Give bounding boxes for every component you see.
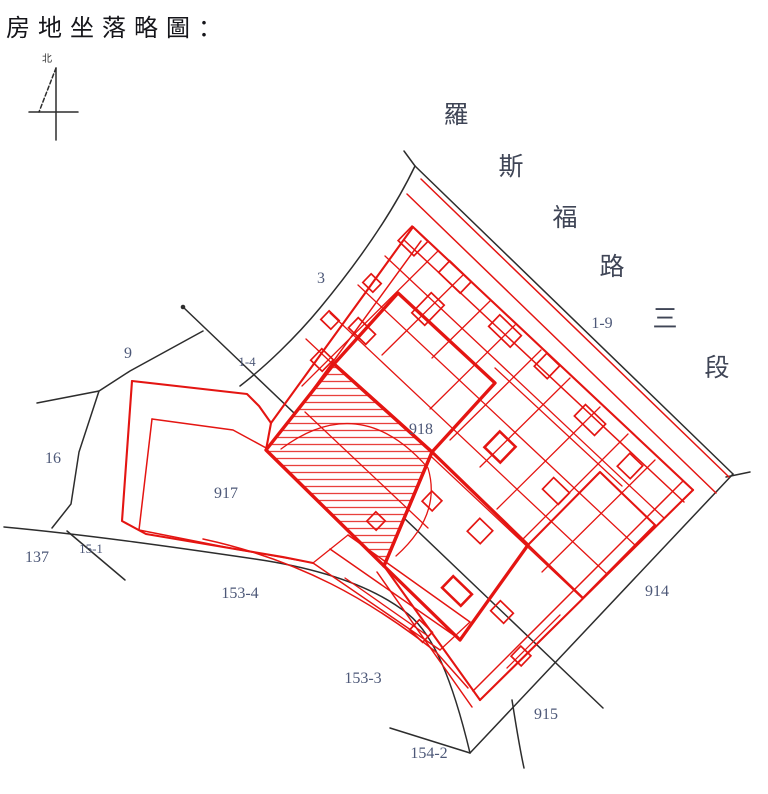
lot-label-137: 137: [25, 549, 49, 566]
building-outline: [467, 518, 492, 543]
building-outline: [442, 576, 472, 606]
sw-strip-cap: [313, 535, 348, 563]
grid-line: [480, 378, 570, 467]
lot-label-914: 914: [645, 583, 669, 600]
street-char-2: 斯: [498, 152, 523, 181]
red-parcel-lines: [122, 179, 729, 707]
cadastral-site-plan-map: 北: [0, 0, 768, 794]
lot-label-153-4: 153-4: [221, 585, 258, 602]
grid-line: [542, 460, 655, 572]
line-end-dot: [181, 305, 186, 310]
building-outline: [422, 491, 442, 511]
lot-label-153-3: 153-3: [344, 670, 381, 687]
lot915-leader: [512, 700, 524, 768]
street-char-4: 路: [599, 252, 624, 281]
building-outline: [489, 315, 522, 347]
boundary-southeast: [470, 474, 733, 753]
lot-label-915: 915: [534, 706, 558, 723]
street-char-5: 三: [652, 304, 677, 333]
building-outline: [617, 453, 642, 478]
boundary-northwest: [240, 166, 415, 386]
street-char-6: 段: [704, 353, 729, 382]
lot917-outer-top: [132, 381, 271, 423]
building-outline: [543, 478, 570, 505]
lot-label-3: 3: [317, 270, 325, 287]
grid-line: [385, 256, 664, 518]
north-arrow: 北: [29, 53, 78, 140]
lot-label-1-4: 1-4: [238, 354, 256, 369]
building-outline: [439, 261, 472, 293]
lot-label-917: 917: [214, 485, 238, 502]
curve-parallel-red: [436, 652, 468, 688]
lot-label-9: 9: [124, 345, 132, 362]
lot9-boundary: [37, 331, 203, 403]
road-curve-south: [4, 527, 470, 753]
building-outline: [574, 405, 605, 436]
lot-label-918: 918: [409, 421, 433, 438]
lot917-outer-left-bottom: [122, 381, 313, 563]
street-char-1: 羅: [443, 100, 468, 129]
north-label: 北: [42, 53, 52, 65]
site-plan-page: 房地坐落略圖： 北: [0, 0, 768, 794]
north-arrow-feather: [39, 68, 56, 112]
corner-nub: [404, 151, 415, 166]
sw-strip: [313, 563, 440, 650]
lot-label-16: 16: [45, 450, 61, 467]
street-char-3: 福: [552, 203, 577, 232]
grid-line: [450, 350, 541, 440]
lot-label-15-1: 15-1: [79, 541, 103, 556]
lot-label-154-2: 154-2: [410, 745, 447, 762]
lot-label-1-9: 1-9: [591, 315, 612, 332]
lot917-inner-top: [152, 419, 268, 449]
corner-tick: [726, 472, 750, 477]
